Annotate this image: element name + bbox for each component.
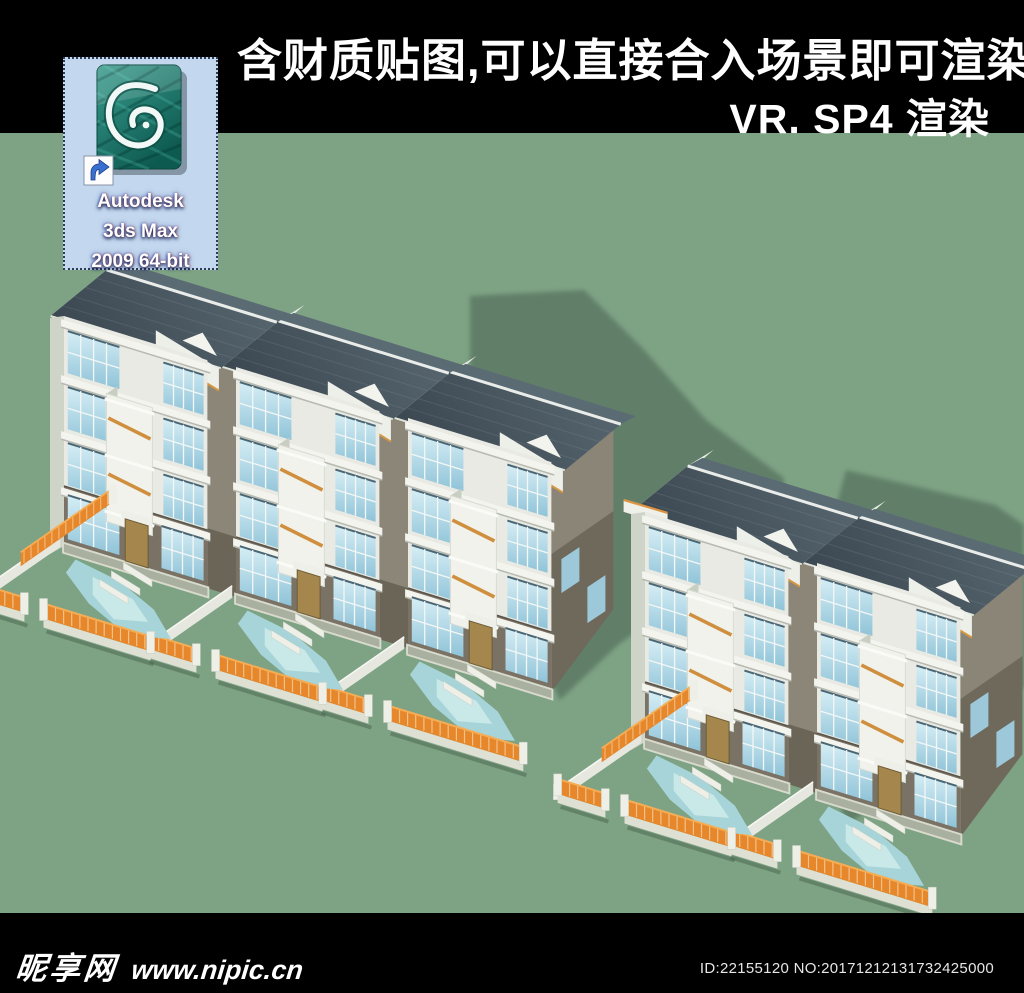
shortcut-label-line3: 2009 64-bit [65,247,216,277]
bottom-banner: 昵享网www.nipic.cn ID:22155120 NO:201712121… [0,913,1024,993]
desktop-shortcut-3dsmax[interactable]: Autodesk 3ds Max 2009 64-bit [63,57,218,270]
nipic-site-name: 昵享网 [14,951,120,986]
shortcut-label-line1: Autodesk [65,187,216,217]
shortcut-arrow-icon [83,155,115,187]
shortcut-label-line2: 3ds Max [65,217,216,247]
banner-text-line1: 含财质贴图,可以直接合入场景即可渲染 [237,24,1024,89]
shortcut-label: Autodesk 3ds Max 2009 64-bit [65,187,216,277]
nipic-logo: 昵享网www.nipic.cn [14,943,306,988]
nipic-site-url: www.nipic.cn [130,955,305,985]
stage: 含财质贴图,可以直接合入场景即可渲染 VR. SP4 渲染 [0,0,1024,993]
image-id-text: ID:22155120 NO:20171212131732425000 [700,960,994,977]
banner-text-line2: VR. SP4 渲染 [729,85,990,145]
3dsmax-app-icon [89,63,193,179]
